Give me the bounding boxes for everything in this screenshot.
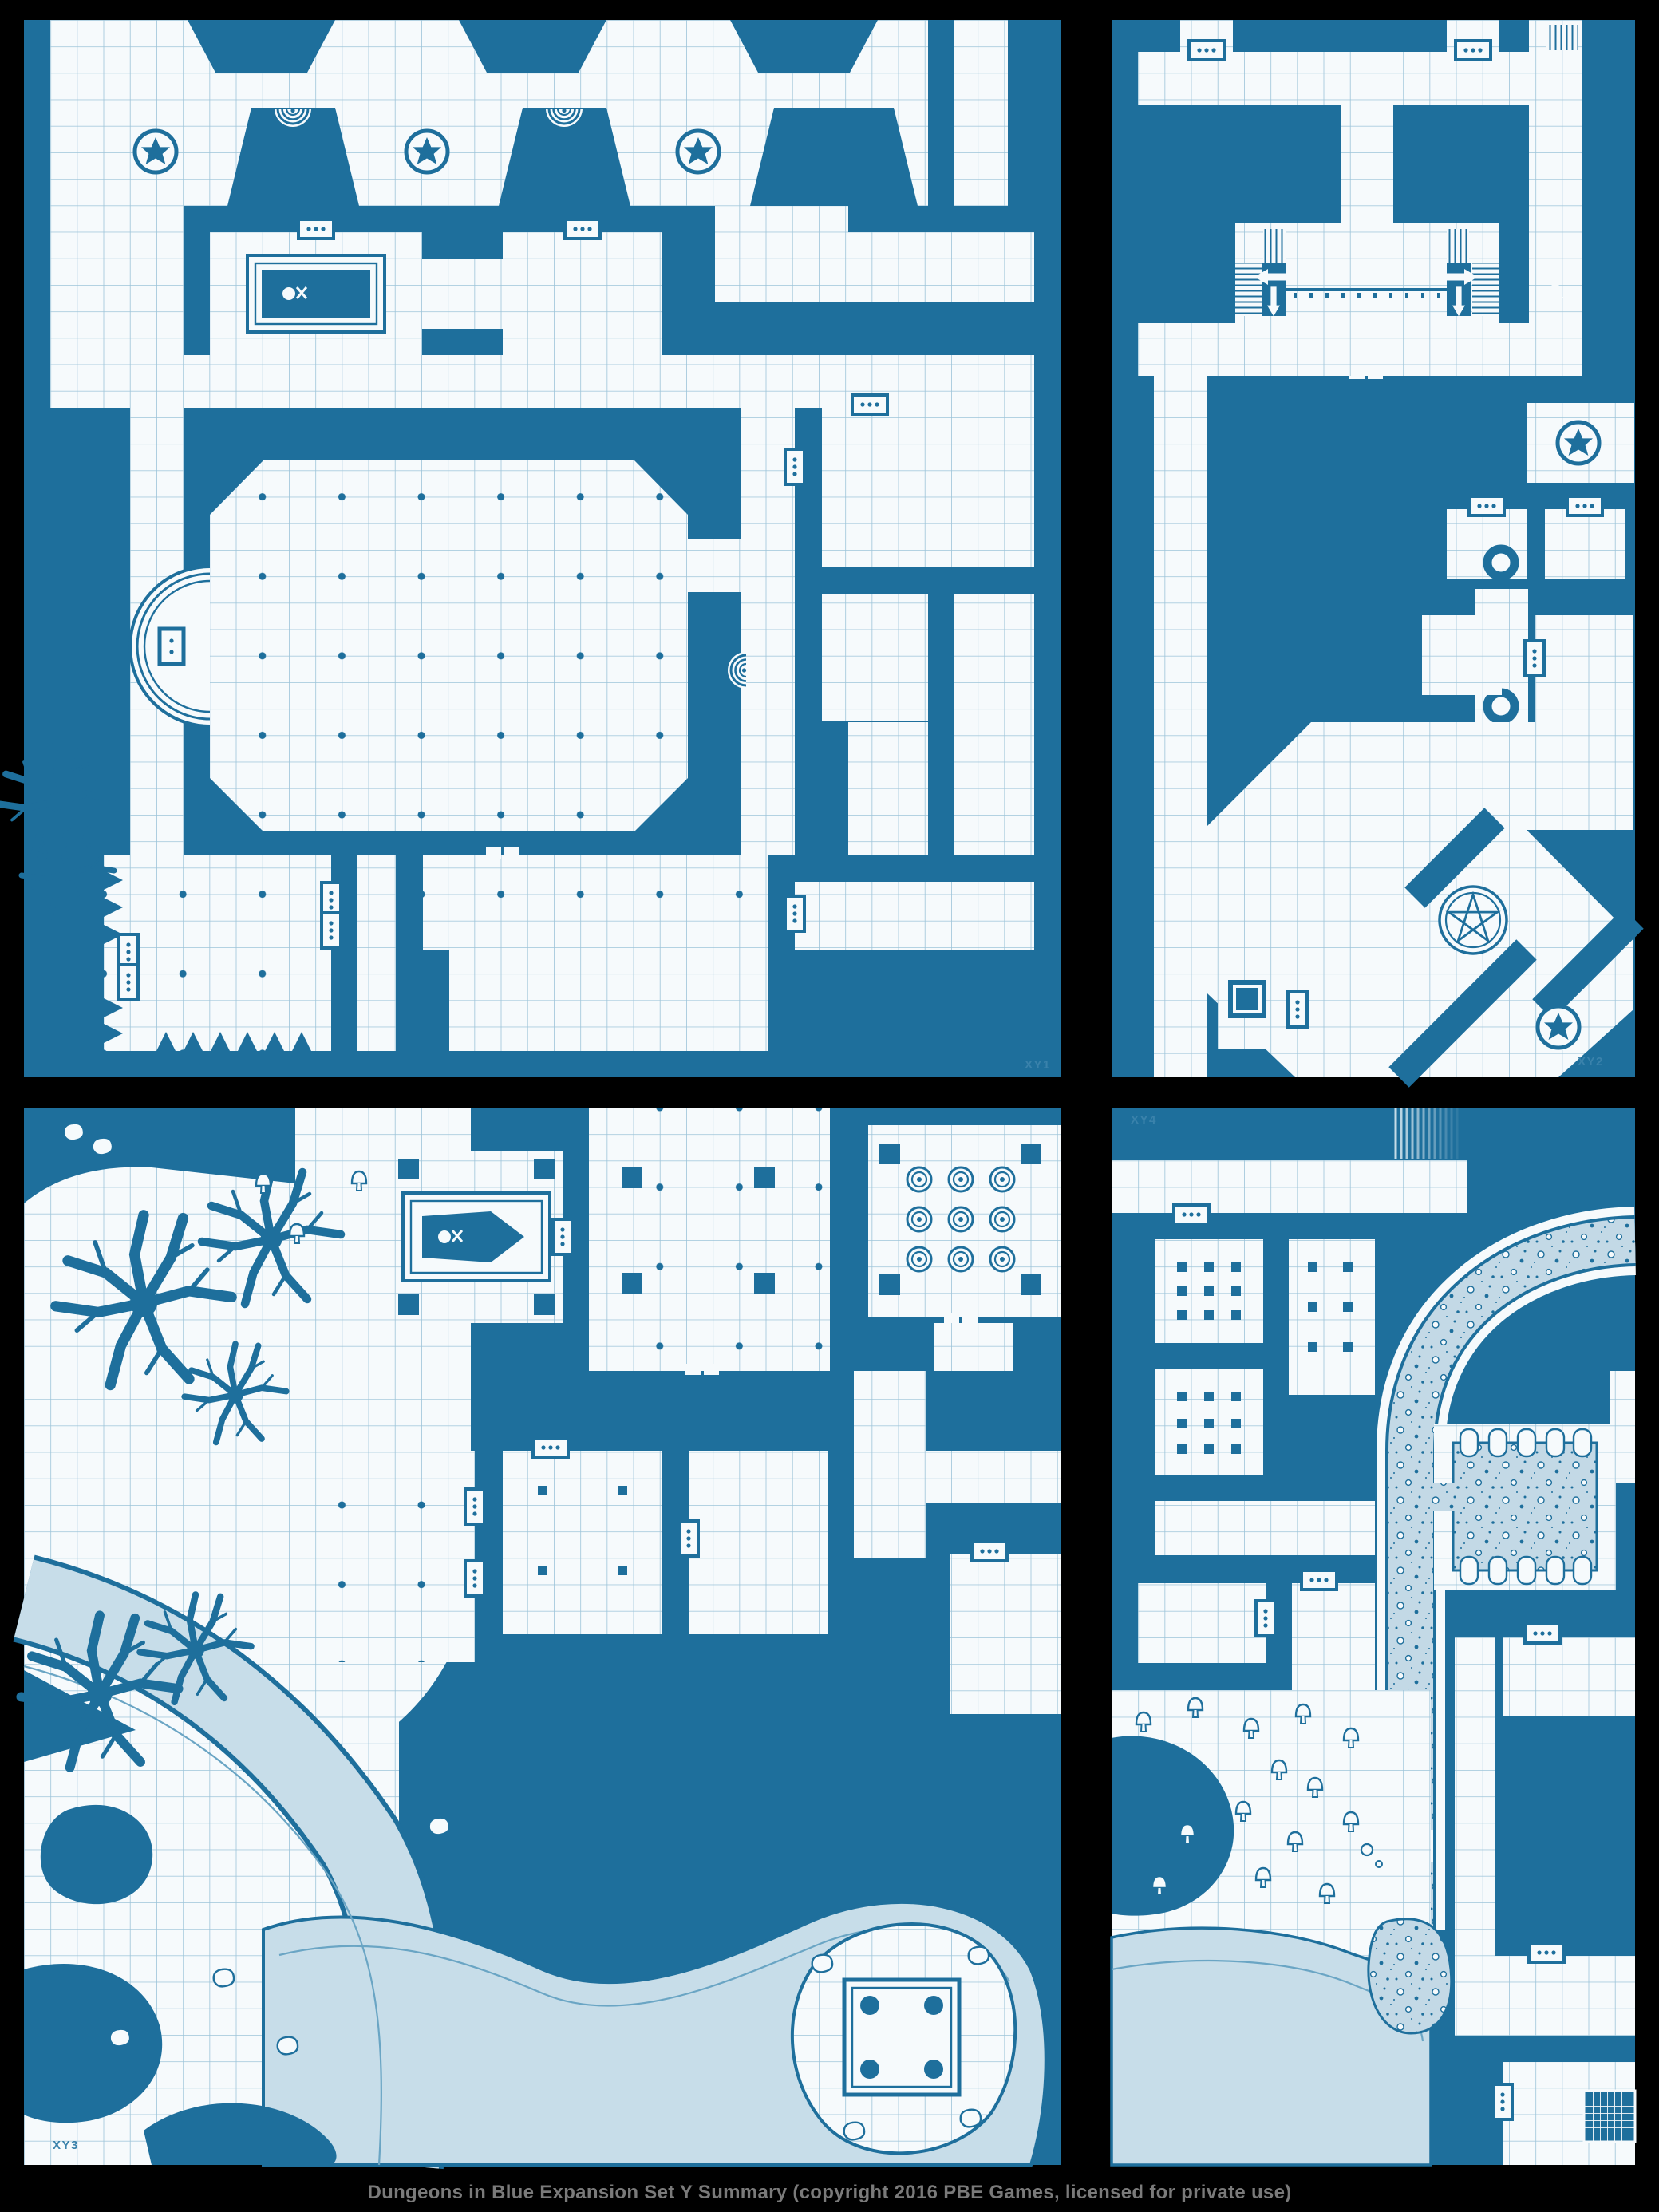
portcullis-door-icon bbox=[1525, 1624, 1560, 1643]
island bbox=[792, 1924, 1015, 2153]
portcullis-door-icon bbox=[1174, 1205, 1209, 1224]
portcullis-door-icon bbox=[119, 965, 138, 1000]
ring-circle-array bbox=[907, 1167, 1014, 1271]
sheet-caption: Dungeons in Blue Expansion Set Y Summary… bbox=[0, 2182, 1659, 2204]
portcullis-door-icon bbox=[785, 449, 804, 484]
tile-label-xy1: XY1 bbox=[1025, 1058, 1051, 1072]
well-icon bbox=[1487, 549, 1515, 576]
tile-label-xy4: XY4 bbox=[1131, 1113, 1157, 1127]
portcullis-door-icon bbox=[1288, 992, 1307, 1027]
tile-label-xy3: XY3 bbox=[53, 2139, 79, 2152]
summary-sheet: XY1 XY2 XY3 XY4 Dungeons in Blue Expansi… bbox=[0, 0, 1659, 2212]
apse-altar-icon bbox=[160, 629, 184, 664]
portcullis-door-icon bbox=[1525, 641, 1544, 676]
staircase-stripes bbox=[1472, 263, 1499, 316]
chest-box-icon bbox=[1228, 980, 1266, 1018]
portcullis-door-icon bbox=[1493, 2084, 1512, 2119]
portcullis-door-icon bbox=[1456, 41, 1491, 60]
portcullis-door-icon bbox=[1302, 1570, 1337, 1590]
portcullis-door-icon bbox=[1529, 1943, 1564, 1962]
staircase-stripes bbox=[1235, 263, 1262, 316]
star-circle-icon bbox=[135, 131, 176, 172]
portcullis-door-icon bbox=[1567, 496, 1602, 515]
water-pool bbox=[1112, 1919, 1452, 2165]
portcullis-door-icon bbox=[785, 896, 804, 931]
sarcophagus-icon bbox=[247, 255, 385, 332]
portcullis-door-icon bbox=[322, 913, 341, 948]
star-circle-icon bbox=[1538, 1006, 1579, 1048]
portcullis-door-icon bbox=[1469, 496, 1504, 515]
portcullis-door-icon bbox=[533, 1438, 568, 1457]
map-tile-xy4 bbox=[1112, 1108, 1635, 2165]
island-altar-icon bbox=[844, 1980, 959, 2095]
tile-label-xy2: XY2 bbox=[1578, 1055, 1604, 1068]
ledge-rail bbox=[1286, 288, 1447, 291]
portcullis-door-icon bbox=[465, 1561, 484, 1596]
portcullis-door-icon bbox=[1256, 1601, 1275, 1636]
portcullis-door-icon bbox=[1189, 41, 1224, 60]
coffin-icon bbox=[403, 1193, 550, 1281]
portcullis-door-icon bbox=[465, 1489, 484, 1524]
rubble-hall bbox=[1429, 1424, 1616, 1590]
portcullis-door-icon bbox=[565, 219, 600, 239]
portcullis-door-icon bbox=[679, 1521, 698, 1556]
map-tile-xy3 bbox=[21, 1108, 1061, 2165]
portcullis-door-icon bbox=[852, 395, 887, 414]
portcullis-door-icon bbox=[972, 1542, 1007, 1561]
map-tile-xy1 bbox=[0, 20, 1061, 1077]
grate-pit bbox=[1584, 2091, 1635, 2142]
star-circle-icon bbox=[1558, 422, 1599, 464]
dungeon-maps-art bbox=[0, 0, 1659, 2212]
portcullis-door-icon bbox=[298, 219, 334, 239]
star-circle-icon bbox=[677, 131, 719, 172]
well-icon bbox=[1487, 693, 1515, 720]
map-tile-xy2 bbox=[1112, 20, 1635, 1077]
pentagram-icon bbox=[1440, 887, 1507, 954]
portcullis-door-icon bbox=[553, 1219, 572, 1254]
star-circle-icon bbox=[406, 131, 448, 172]
